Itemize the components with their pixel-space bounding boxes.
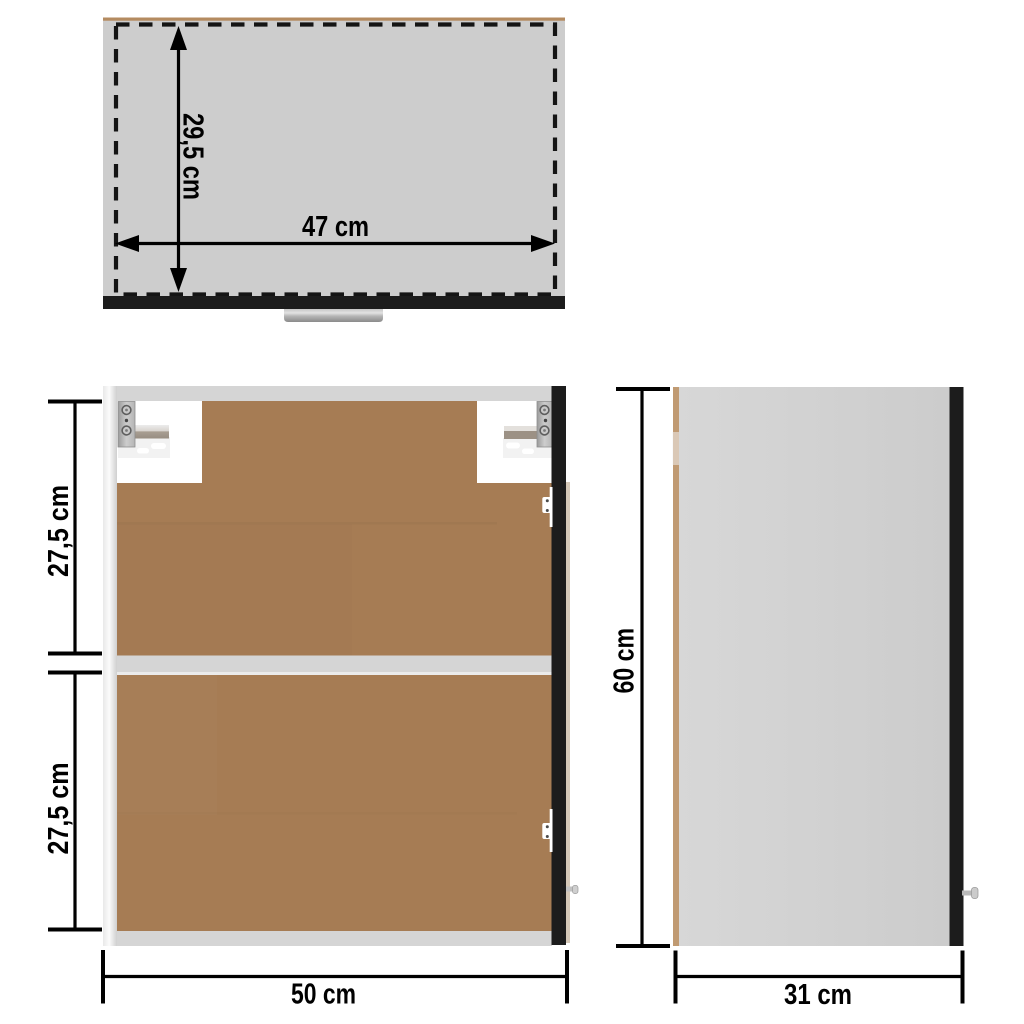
svg-text:60 cm: 60 cm <box>609 628 641 694</box>
svg-text:27,5 cm: 27,5 cm <box>43 485 75 577</box>
svg-text:27,5 cm: 27,5 cm <box>43 763 75 855</box>
svg-text:29,5 cm: 29,5 cm <box>177 113 209 200</box>
svg-text:47 cm: 47 cm <box>302 211 369 243</box>
svg-text:50 cm: 50 cm <box>291 979 356 1011</box>
svg-text:31 cm: 31 cm <box>784 979 852 1011</box>
